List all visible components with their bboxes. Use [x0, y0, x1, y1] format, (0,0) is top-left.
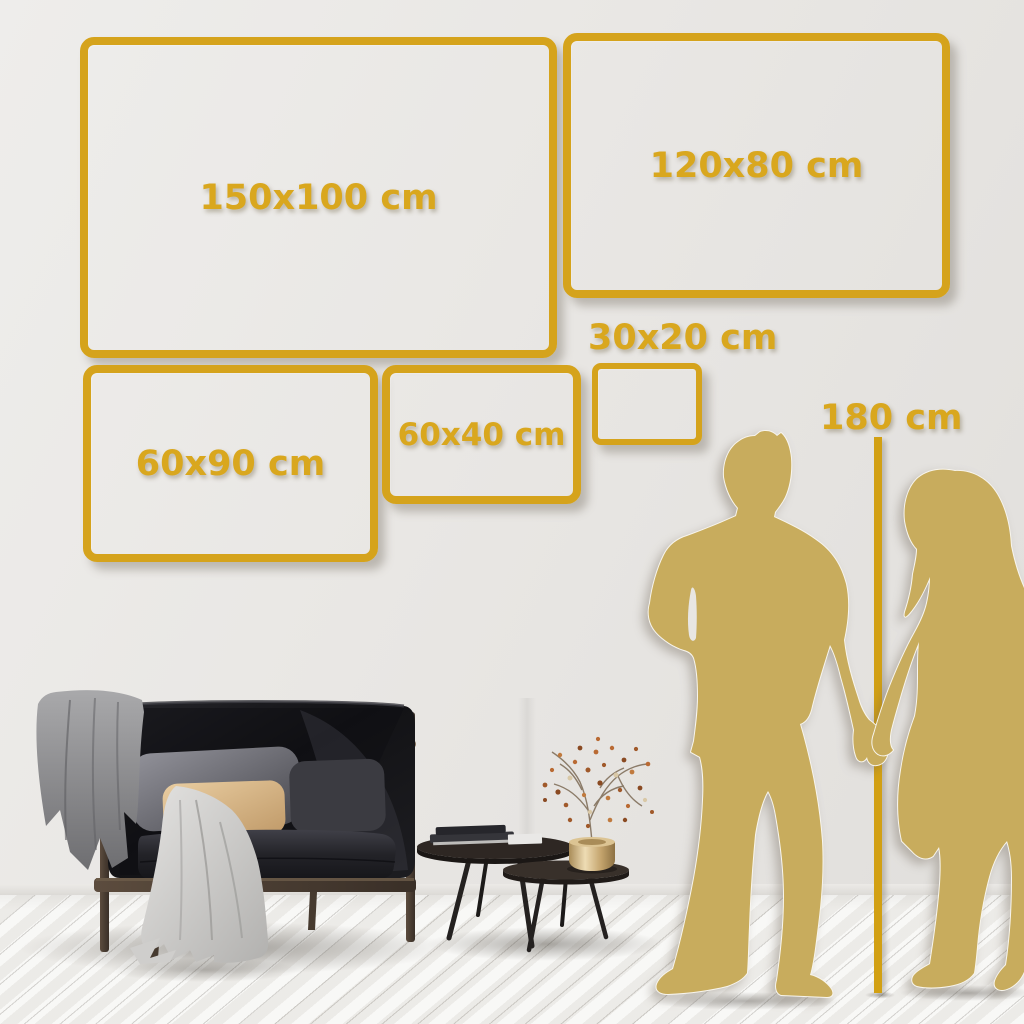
size-frame-150x100: 150x100 cm	[80, 37, 557, 358]
size-label-120x80: 120x80 cm	[650, 146, 864, 186]
size-label-30x20: 30x20 cm	[588, 318, 777, 358]
size-label-60x40: 60x40 cm	[398, 417, 566, 453]
size-label-150x100: 150x100 cm	[199, 178, 437, 218]
size-guide-image: 150x100 cm 120x80 cm 60x90 cm 60x40 cm 3…	[0, 0, 1024, 1024]
height-measure-line	[874, 437, 882, 993]
size-frame-60x40: 60x40 cm	[382, 365, 581, 504]
wall-shadow-line	[518, 698, 536, 894]
size-frame-60x90: 60x90 cm	[83, 365, 378, 562]
size-label-60x90: 60x90 cm	[136, 444, 325, 484]
wood-floor	[0, 895, 1024, 1024]
size-frame-30x20	[592, 363, 702, 445]
height-label-180cm: 180 cm	[820, 398, 962, 438]
size-frame-120x80: 120x80 cm	[563, 33, 950, 298]
